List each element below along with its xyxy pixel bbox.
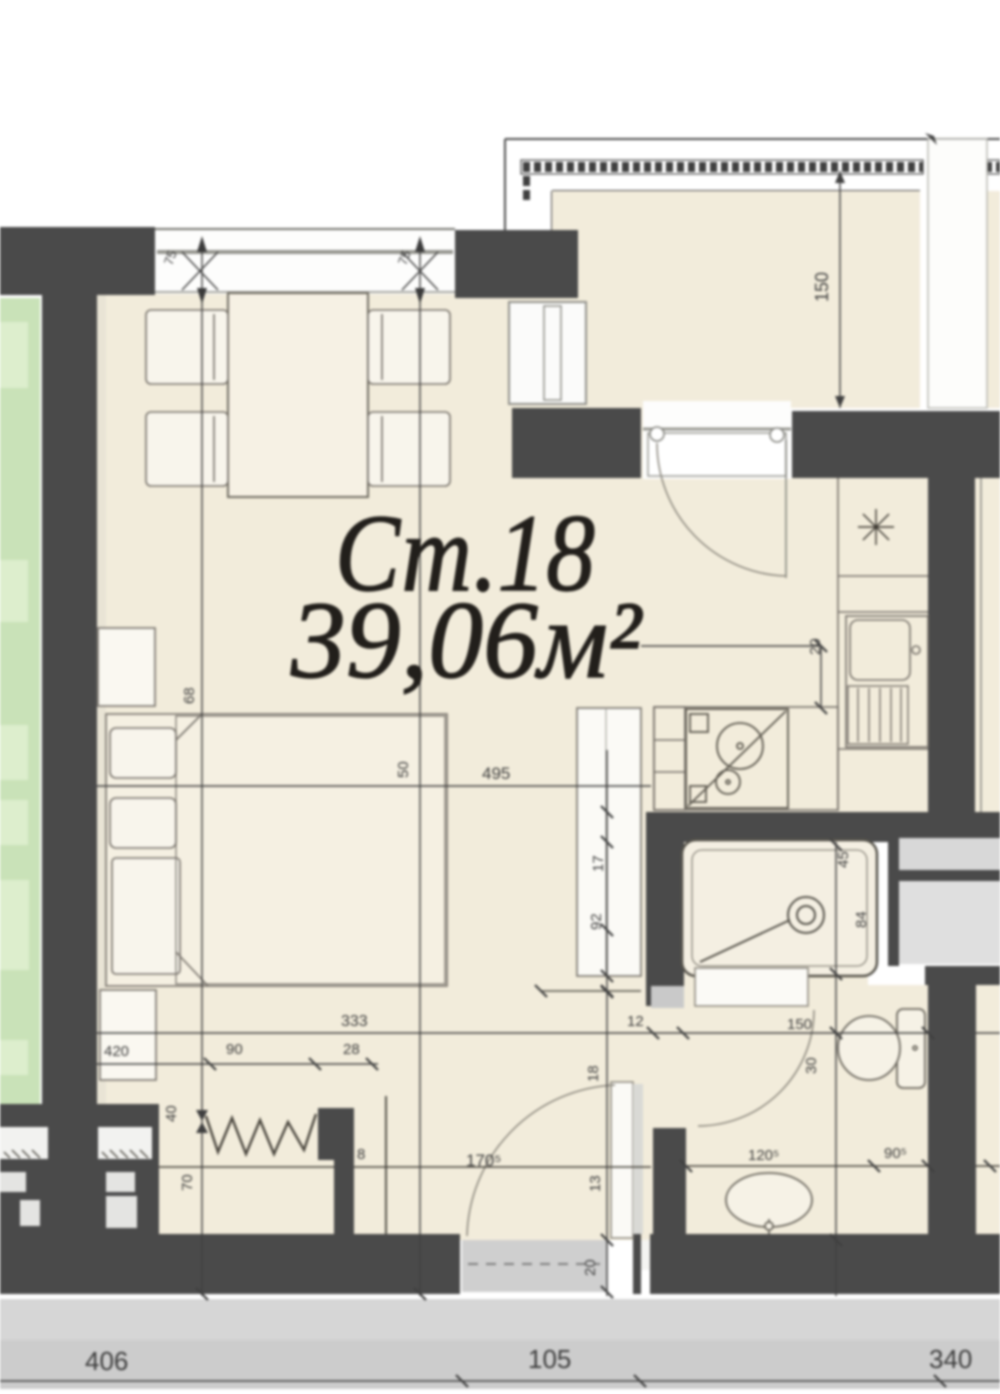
svg-text:39,06м²: 39,06м² — [290, 579, 643, 701]
svg-text:70: 70 — [179, 1174, 196, 1191]
svg-text:90⁵: 90⁵ — [884, 1145, 907, 1162]
svg-text:8: 8 — [357, 1146, 365, 1163]
svg-text:150: 150 — [812, 272, 832, 302]
svg-text:68: 68 — [181, 687, 198, 704]
svg-text:170⁵: 170⁵ — [466, 1151, 501, 1170]
svg-text:90: 90 — [226, 1041, 243, 1058]
svg-text:13: 13 — [587, 1175, 604, 1192]
svg-text:17: 17 — [590, 855, 607, 872]
svg-text:20: 20 — [582, 1259, 599, 1276]
svg-text:18: 18 — [585, 1065, 602, 1082]
svg-text:150: 150 — [787, 1016, 812, 1033]
svg-text:333: 333 — [341, 1013, 368, 1030]
svg-text:340: 340 — [929, 1344, 972, 1374]
svg-text:30: 30 — [803, 1057, 820, 1074]
svg-text:92: 92 — [588, 913, 605, 930]
svg-text:12: 12 — [627, 1013, 644, 1030]
svg-text:495: 495 — [482, 764, 510, 783]
svg-text:406: 406 — [85, 1346, 128, 1376]
svg-text:105: 105 — [528, 1344, 571, 1374]
svg-text:120⁵: 120⁵ — [748, 1147, 779, 1164]
svg-text:50: 50 — [395, 761, 412, 778]
svg-text:420: 420 — [104, 1043, 129, 1060]
svg-text:45: 45 — [835, 851, 852, 868]
svg-text:40: 40 — [163, 1105, 180, 1122]
svg-text:84: 84 — [853, 911, 870, 928]
svg-text:28: 28 — [343, 1041, 360, 1058]
